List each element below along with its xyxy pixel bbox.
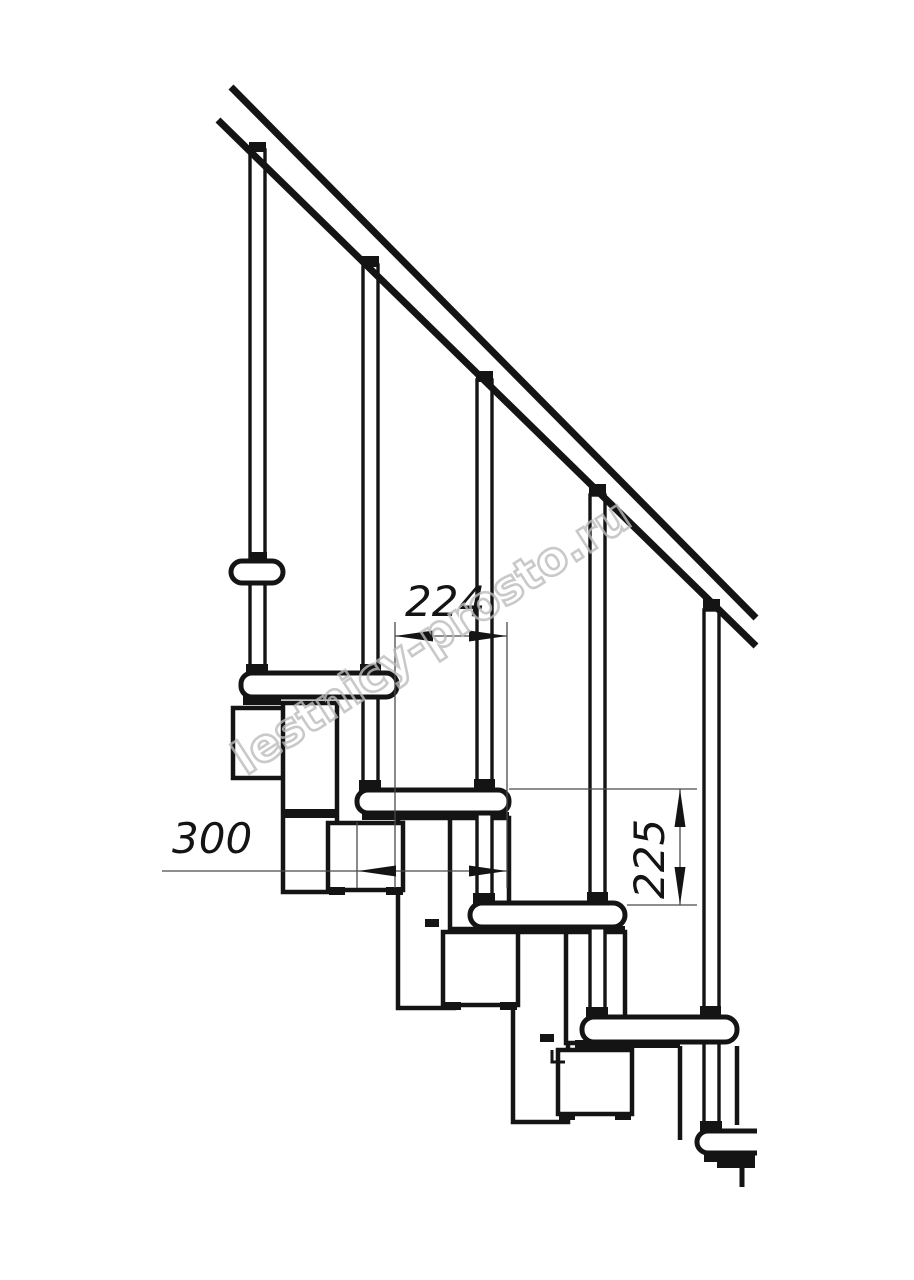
baluster — [704, 610, 719, 1133]
module-foot — [540, 1034, 554, 1042]
module-foot — [386, 887, 403, 895]
staircase-drawing: 224 300 225 lestnicy-prosto.ru — [0, 0, 914, 1280]
module-box — [443, 932, 518, 1005]
baluster-tread-joint — [474, 779, 495, 791]
module-foot — [500, 1002, 517, 1010]
tread — [697, 1131, 757, 1153]
drawing-canvas: 224 300 225 lestnicy-prosto.ru — [0, 0, 914, 1280]
module-cap — [284, 809, 337, 818]
baluster — [590, 495, 605, 1019]
dimension-label-rise: 225 — [625, 819, 674, 899]
baluster-tread-joint — [700, 1006, 721, 1018]
baluster-foot — [246, 664, 268, 675]
baluster — [250, 150, 265, 677]
module-box — [558, 1050, 632, 1114]
tread — [582, 1017, 737, 1042]
arrow-up — [675, 789, 686, 827]
tread-stub — [231, 561, 283, 583]
baluster — [477, 380, 492, 905]
baluster — [363, 265, 378, 792]
arrow-down — [675, 867, 686, 905]
baluster-foot — [700, 1121, 722, 1132]
module-foot — [329, 887, 345, 895]
baluster-tread-joint — [587, 892, 608, 904]
dimension-label-depth: 300 — [172, 814, 252, 863]
module-foot — [615, 1112, 631, 1120]
module-foot — [425, 919, 439, 927]
module-foot — [559, 1112, 575, 1120]
watermark-text: lestnicy-prosto.ru — [223, 488, 640, 785]
tread — [470, 903, 625, 927]
module-box — [328, 823, 403, 890]
baluster-foot — [359, 780, 381, 791]
tread — [357, 790, 509, 813]
module-step-edge — [717, 1161, 755, 1168]
module-foot — [444, 1002, 461, 1010]
baluster-foot — [586, 1007, 608, 1018]
baluster-foot — [473, 893, 495, 904]
baluster-tread-joint — [249, 552, 267, 562]
